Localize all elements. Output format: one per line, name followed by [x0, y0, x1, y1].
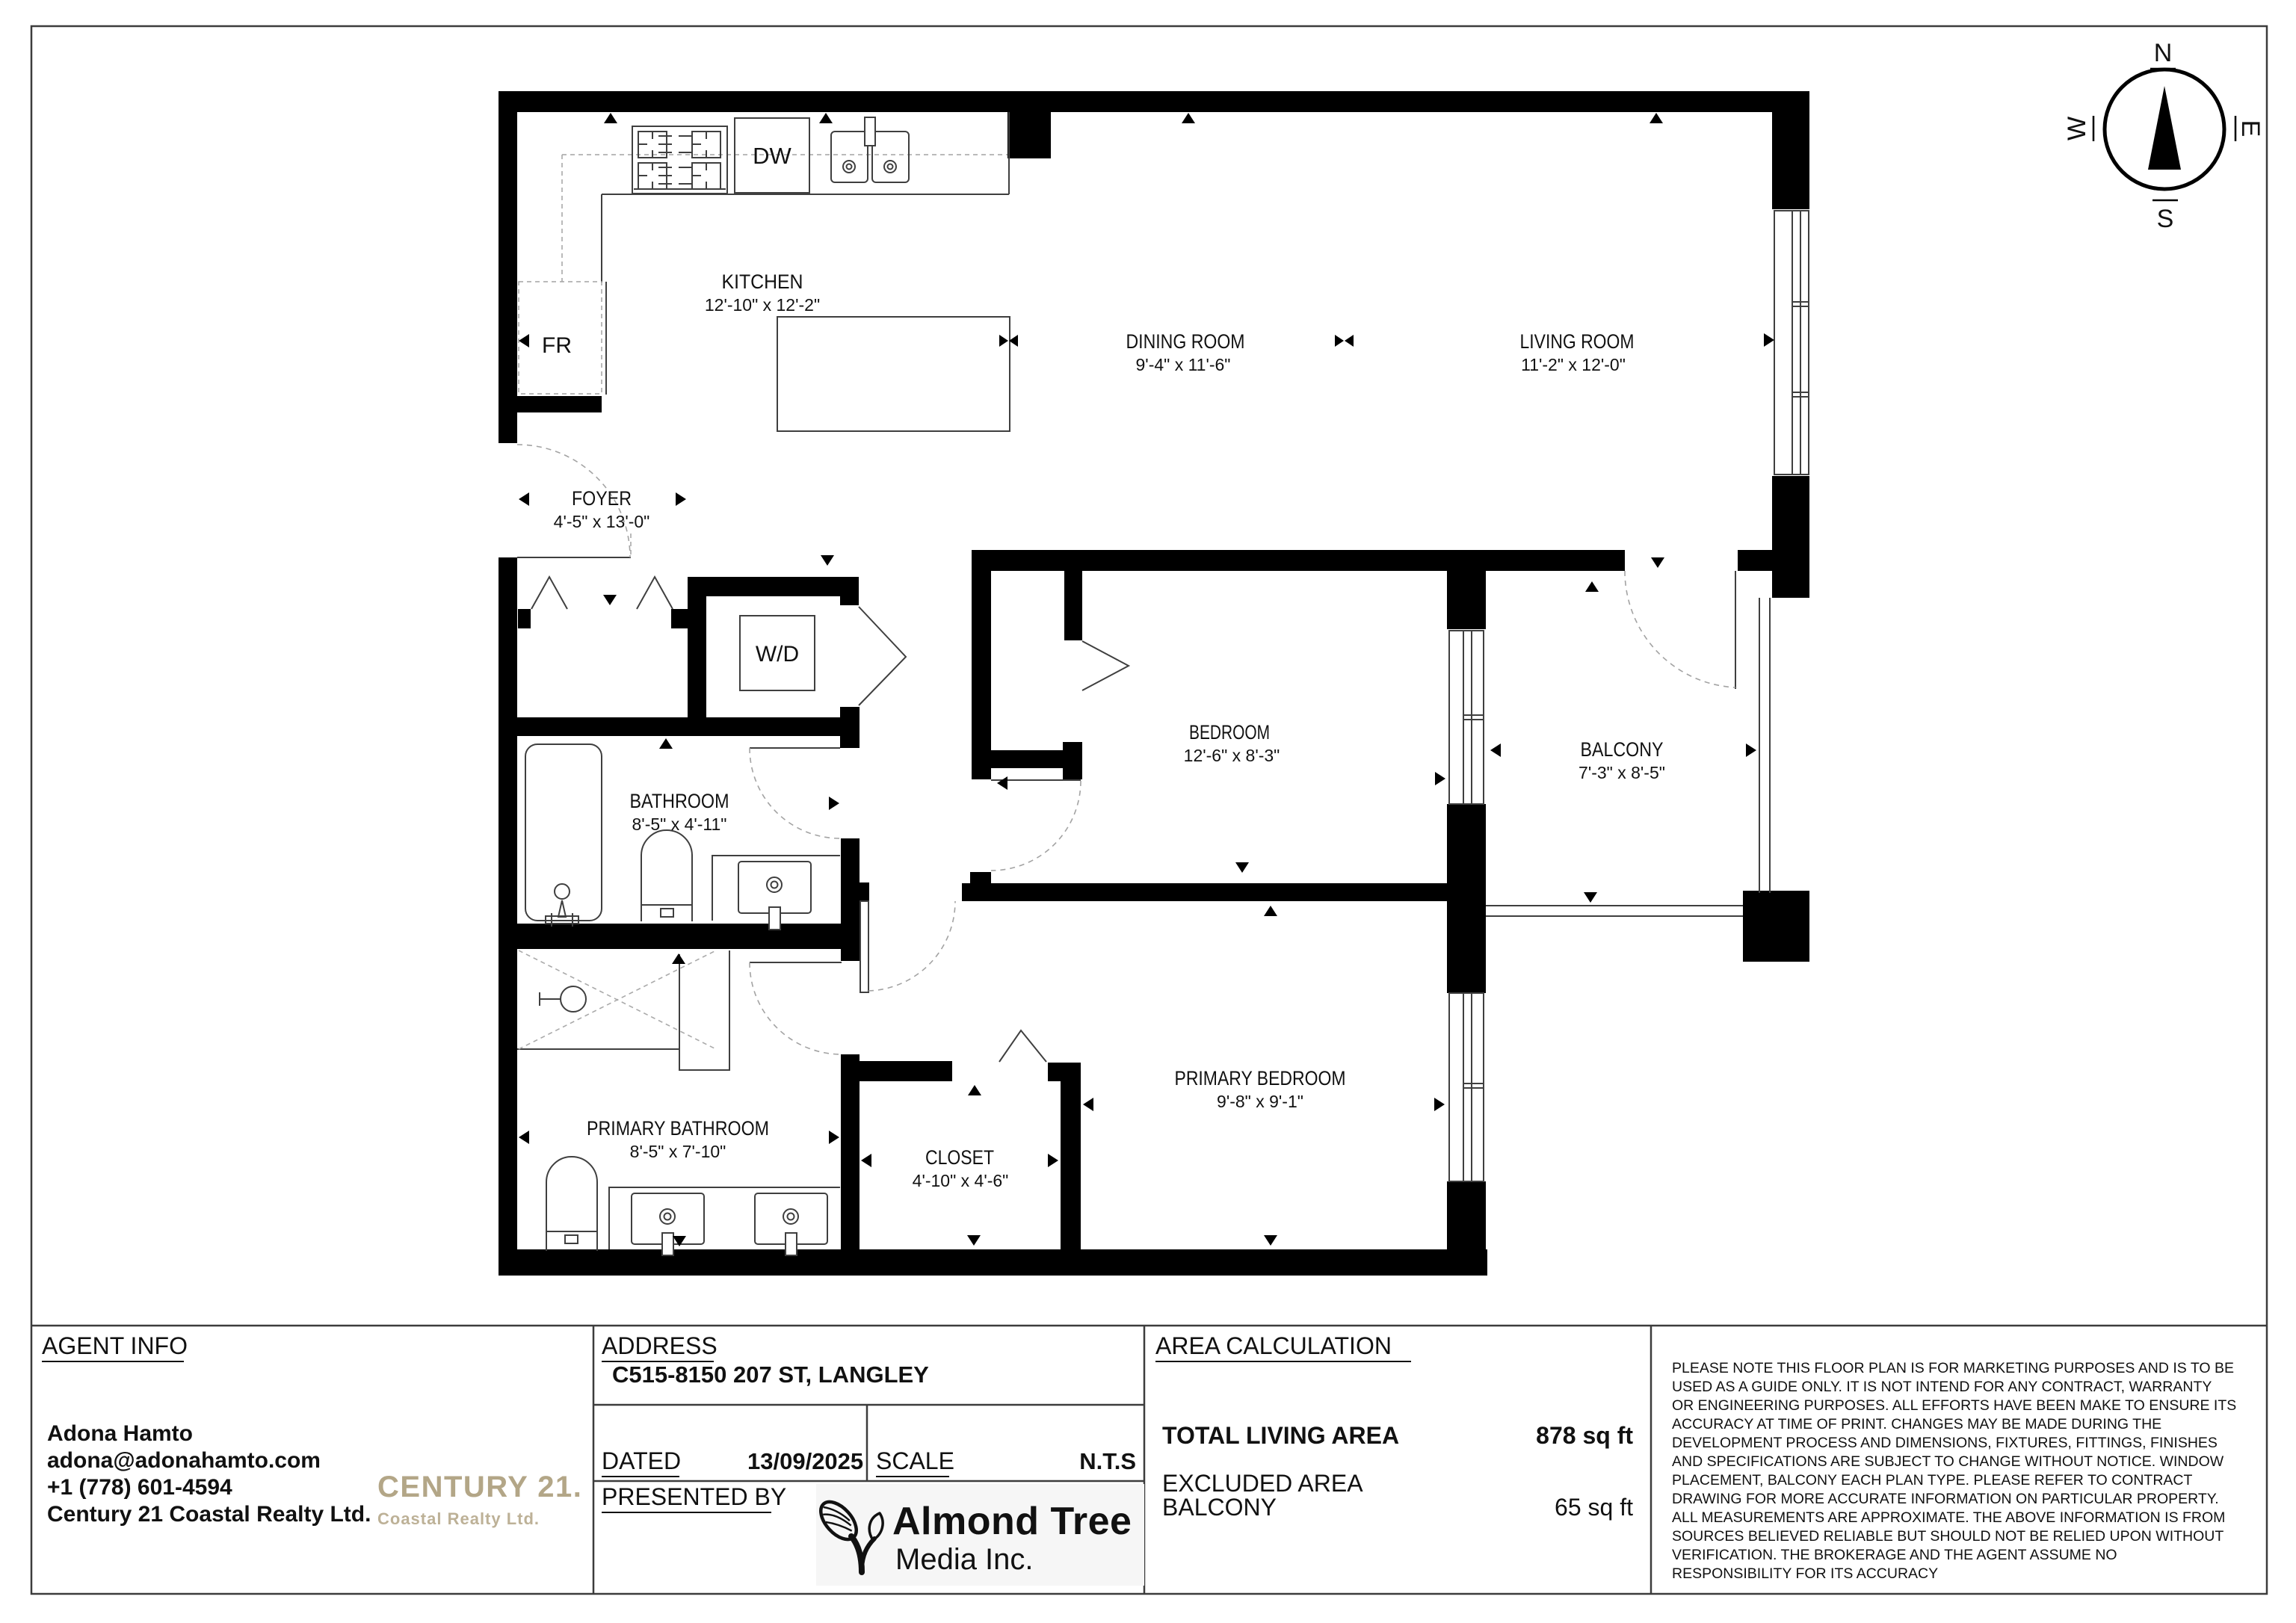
svg-text:BATHROOM: BATHROOM [630, 790, 729, 812]
svg-text:Adona Hamto: Adona Hamto [47, 1421, 193, 1446]
svg-text:E: E [2236, 120, 2265, 137]
svg-text:LIVING ROOM: LIVING ROOM [1520, 330, 1635, 353]
svg-text:DW: DW [753, 143, 791, 169]
svg-text:CLOSET: CLOSET [925, 1146, 994, 1169]
svg-text:KITCHEN: KITCHEN [722, 270, 803, 293]
svg-text:PRESENTED BY: PRESENTED BY [602, 1483, 786, 1510]
svg-text:9'-4" x 11'-6": 9'-4" x 11'-6" [1136, 355, 1231, 374]
svg-text:SCALE: SCALE [876, 1447, 954, 1474]
svg-text:DEVELOPMENT PROCESS AND DIMENS: DEVELOPMENT PROCESS AND DIMENSIONS, FIXT… [1672, 1435, 2218, 1451]
svg-text:4'-10" x 4'-6": 4'-10" x 4'-6" [913, 1171, 1009, 1190]
svg-text:PLACEMENT, BALCONY EACH PLAN T: PLACEMENT, BALCONY EACH PLAN TYPE. PLEAS… [1672, 1472, 2192, 1488]
svg-text:TOTAL LIVING AREA: TOTAL LIVING AREA [1162, 1422, 1399, 1449]
svg-text:4'-5" x 13'-0": 4'-5" x 13'-0" [554, 512, 650, 531]
svg-text:FR: FR [542, 333, 572, 358]
svg-text:Media Inc.: Media Inc. [895, 1543, 1034, 1576]
svg-text:AGENT INFO: AGENT INFO [42, 1332, 188, 1359]
svg-text:7'-3" x 8'-5": 7'-3" x 8'-5" [1578, 763, 1665, 782]
svg-text:C515-8150 207 ST, LANGLEY: C515-8150 207 ST, LANGLEY [612, 1361, 929, 1388]
svg-text:N.T.S: N.T.S [1079, 1448, 1136, 1474]
svg-text:12'-6" x 8'-3": 12'-6" x 8'-3" [1184, 746, 1280, 765]
svg-text:9'-8" x 9'-1": 9'-8" x 9'-1" [1217, 1092, 1303, 1111]
svg-text:8'-5" x 4'-11": 8'-5" x 4'-11" [632, 814, 727, 834]
svg-text:adona@adonahamto.com: adona@adonahamto.com [47, 1448, 321, 1473]
svg-text:EXCLUDED AREA: EXCLUDED AREA [1162, 1470, 1363, 1497]
svg-text:W/D: W/D [756, 642, 799, 667]
svg-text:DINING ROOM: DINING ROOM [1126, 330, 1245, 353]
svg-text:13/09/2025: 13/09/2025 [747, 1448, 863, 1474]
svg-text:878 sq ft: 878 sq ft [1536, 1422, 1633, 1449]
svg-text:S: S [2157, 205, 2174, 233]
svg-text:Century 21 Coastal Realty Ltd.: Century 21 Coastal Realty Ltd. [47, 1502, 371, 1527]
svg-text:65 sq ft: 65 sq ft [1555, 1494, 1633, 1521]
svg-text:PRIMARY BATHROOM: PRIMARY BATHROOM [587, 1117, 769, 1140]
svg-text:DRAWING FOR MORE ACCURATE INFO: DRAWING FOR MORE ACCURATE INFORMATION ON… [1672, 1491, 2219, 1507]
svg-text:Coastal Realty Ltd.: Coastal Realty Ltd. [377, 1509, 540, 1528]
svg-text:SOURCES BELIEVED RELIABLE BUT: SOURCES BELIEVED RELIABLE BUT SHOULD NOT… [1672, 1528, 2224, 1545]
svg-text:RESPONSIBILITY FOR ITS ACCURAC: RESPONSIBILITY FOR ITS ACCURACY [1672, 1565, 1938, 1582]
svg-text:PRIMARY BEDROOM: PRIMARY BEDROOM [1175, 1067, 1346, 1089]
svg-text:12'-10" x 12'-2": 12'-10" x 12'-2" [705, 295, 820, 315]
svg-text:BEDROOM: BEDROOM [1189, 721, 1270, 744]
svg-text:DATED: DATED [602, 1447, 681, 1474]
svg-text:11'-2" x 12'-0": 11'-2" x 12'-0" [1521, 355, 1626, 374]
svg-text:AND SPECIFICATIONS ARE SUBJECT: AND SPECIFICATIONS ARE SUBJECT TO CHANGE… [1672, 1453, 2224, 1470]
svg-text:BALCONY: BALCONY [1162, 1494, 1277, 1521]
svg-text:BALCONY: BALCONY [1581, 738, 1664, 761]
svg-text:ADDRESS: ADDRESS [602, 1332, 717, 1359]
svg-text:Almond Tree: Almond Tree [892, 1500, 1132, 1543]
svg-text:W: W [2063, 117, 2091, 140]
svg-text:+1 (778) 601-4594: +1 (778) 601-4594 [47, 1475, 232, 1500]
svg-text:OR ENGINEERING PURPOSES. ALL E: OR ENGINEERING PURPOSES. ALL EFFORTS HAV… [1672, 1397, 2236, 1414]
svg-text:8'-5" x 7'-10": 8'-5" x 7'-10" [630, 1142, 726, 1161]
svg-text:VERIFICATION. THE BROKERAGE AN: VERIFICATION. THE BROKERAGE AND THE AGEN… [1672, 1547, 2117, 1563]
svg-text:N: N [2154, 39, 2173, 67]
svg-text:ACCURACY AT TIME OF PRINT. CHA: ACCURACY AT TIME OF PRINT. CHANGES MAY B… [1672, 1416, 2161, 1432]
svg-text:FOYER: FOYER [572, 487, 632, 510]
svg-text:PLEASE NOTE THIS FLOOR PLAN IS: PLEASE NOTE THIS FLOOR PLAN IS FOR MARKE… [1672, 1360, 2234, 1376]
svg-text:CENTURY 21.: CENTURY 21. [377, 1471, 582, 1503]
svg-text:AREA CALCULATION: AREA CALCULATION [1155, 1332, 1392, 1359]
svg-text:USED AS A GUIDE ONLY. IT IS NO: USED AS A GUIDE ONLY. IT IS NOT INTEND F… [1672, 1379, 2212, 1395]
svg-text:ALL MEASUREMENTS ARE APPROXIMA: ALL MEASUREMENTS ARE APPROXIMATE. THE AB… [1672, 1509, 2225, 1526]
